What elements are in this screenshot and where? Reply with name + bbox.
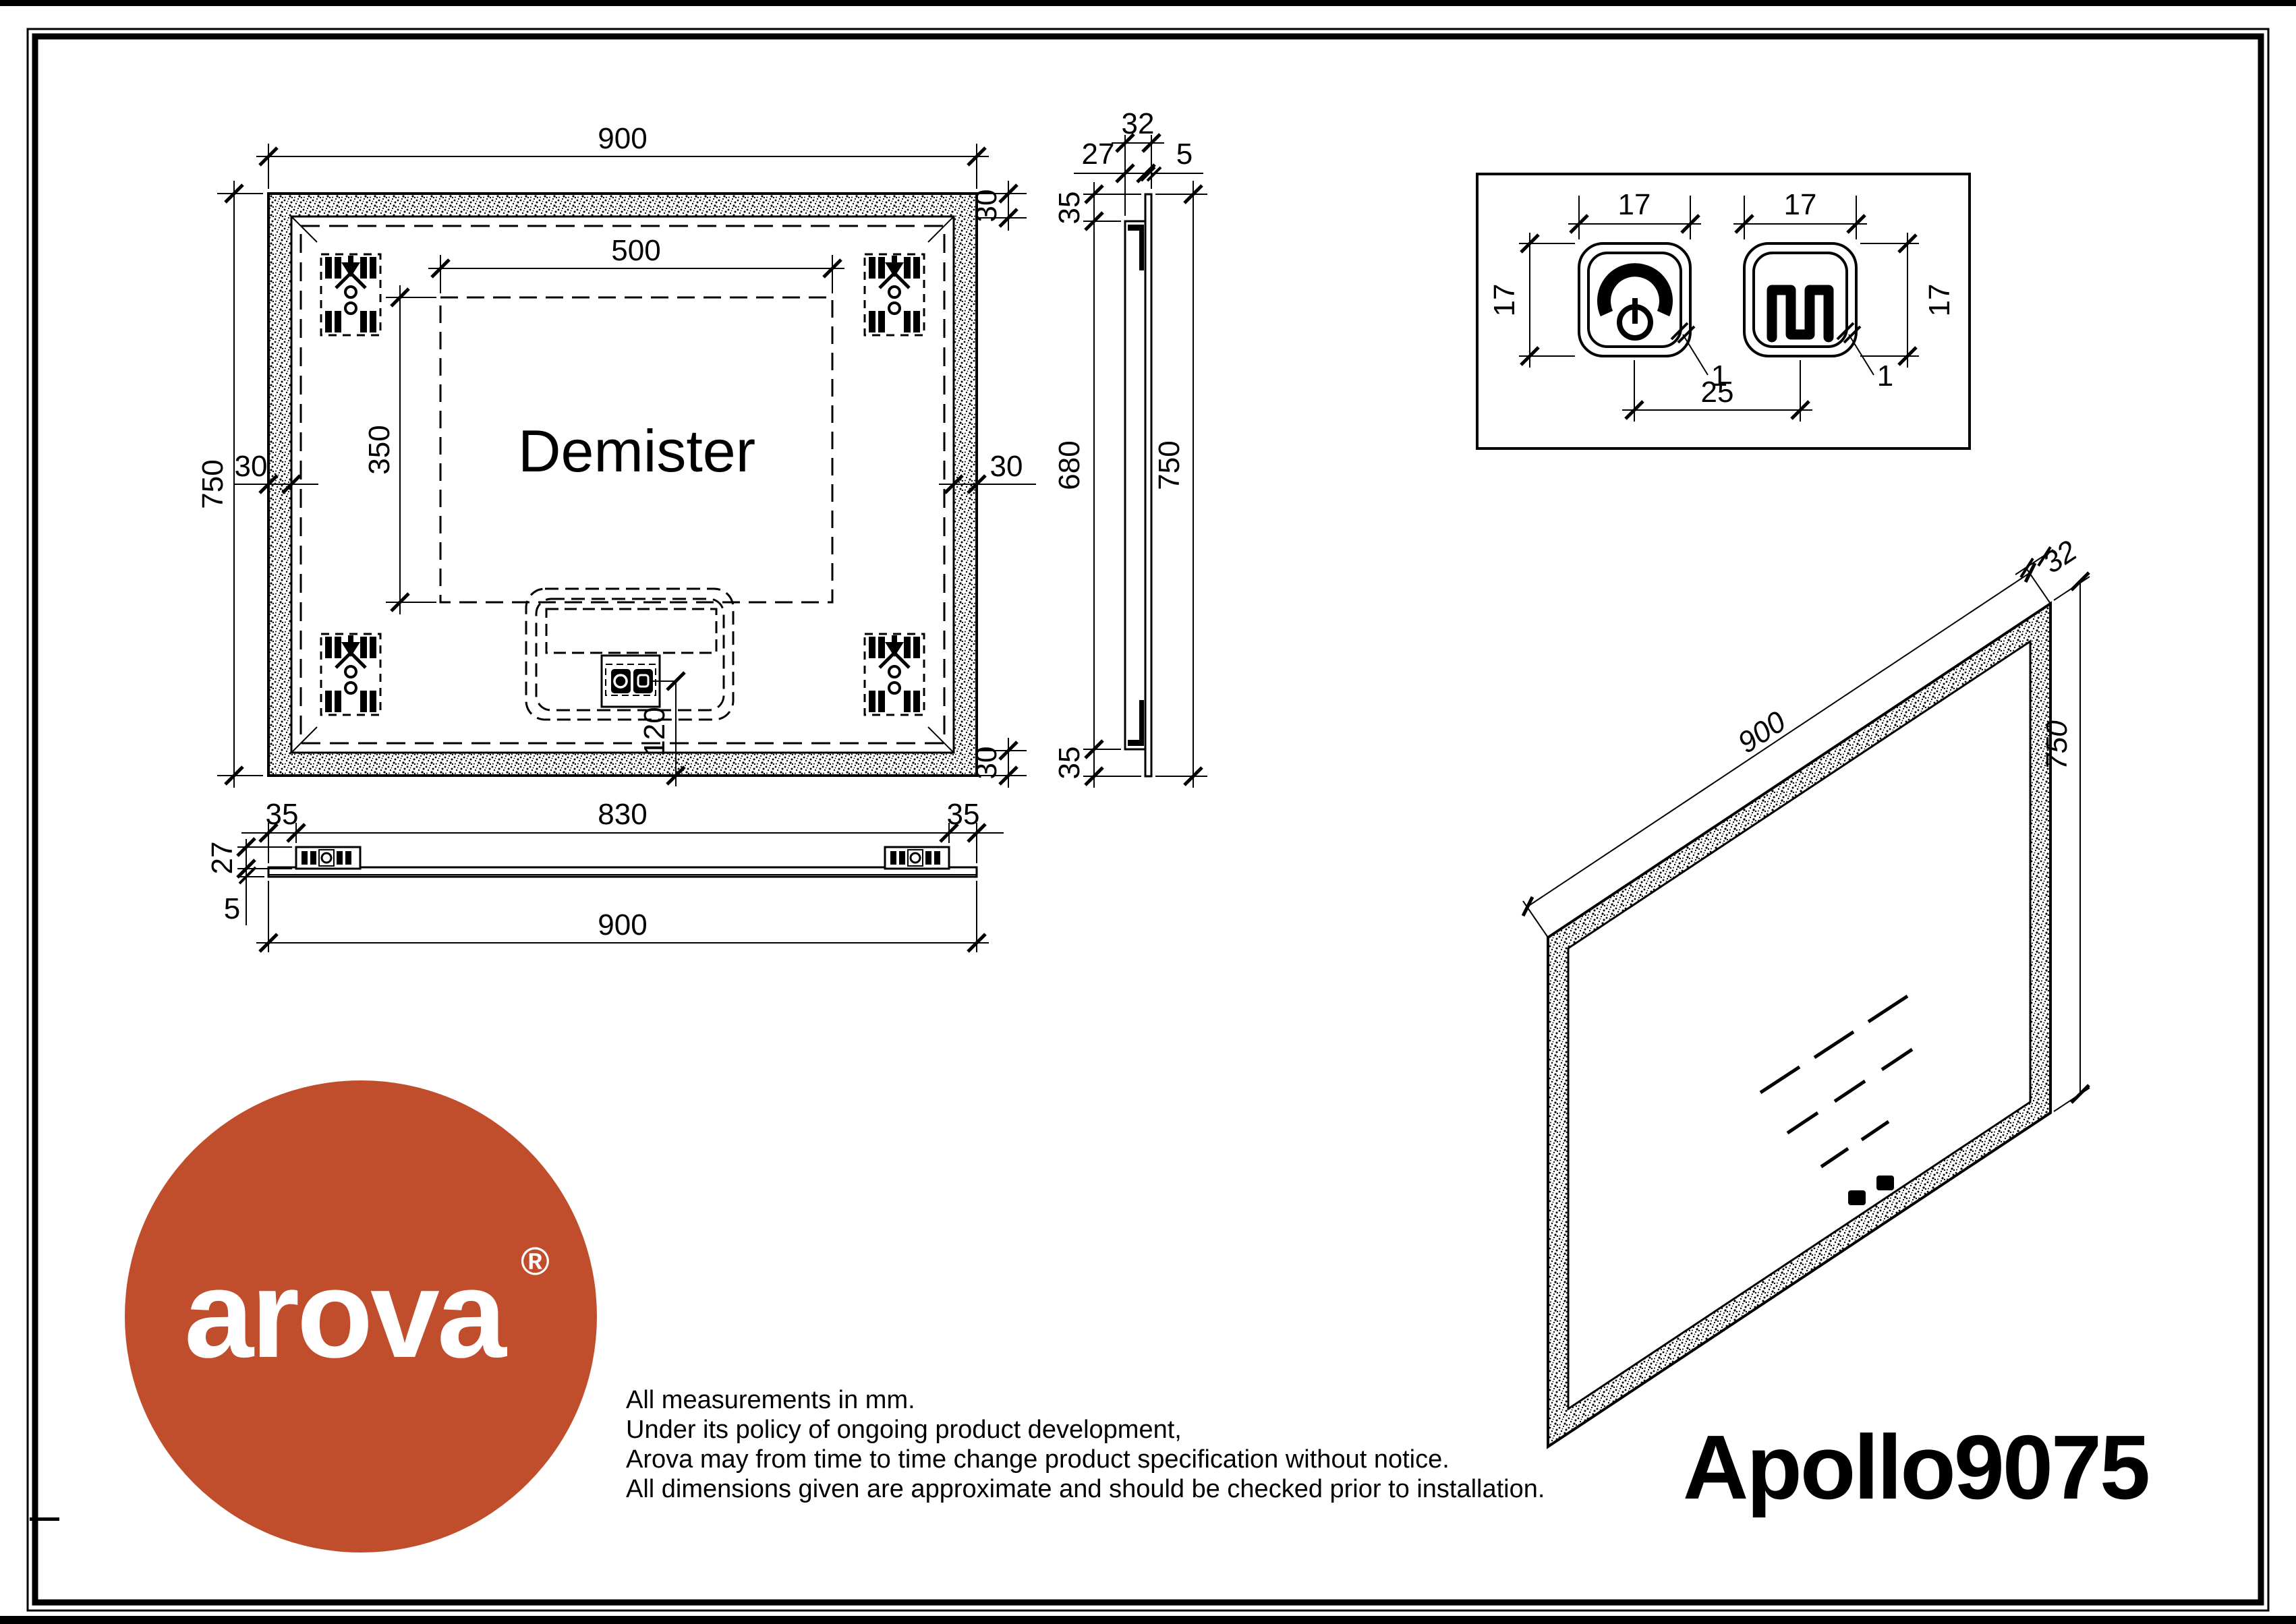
dim-bottom-width: 900	[256, 881, 989, 952]
touch-demister-button-small	[633, 669, 653, 693]
dim-label: 900	[598, 908, 647, 941]
dim-label: 17	[1618, 188, 1651, 221]
brand-name: arova	[184, 1245, 508, 1384]
iso-touch-button-2	[1876, 1176, 1894, 1190]
disclaimer-line: All measurements in mm.	[626, 1386, 915, 1414]
dim-label: 900	[598, 122, 647, 155]
front-view: Demister 900	[196, 122, 1036, 788]
technical-drawing: Demister 900	[0, 0, 2296, 1624]
dim-side-frame-depth: 27	[1074, 138, 1155, 182]
dim-label: 32	[2037, 534, 2083, 580]
dim-label: 1	[1877, 359, 1893, 393]
product-name: Apollo9075	[1683, 1416, 2148, 1518]
bottom-bracket-right	[885, 847, 949, 869]
dim-label: 680	[1053, 440, 1086, 490]
bottom-bracket-left	[296, 847, 360, 869]
dim-label: 120	[638, 707, 671, 756]
registered-trademark-icon: ®	[521, 1240, 550, 1283]
dim-side-thickness: 32	[1112, 107, 1164, 216]
dim-label: 30	[990, 450, 1023, 483]
disclaimer-text: All measurements in mm. Under its policy…	[626, 1386, 1545, 1503]
dim-label: 5	[1176, 138, 1193, 171]
dim-label: 35	[1053, 192, 1086, 225]
dim-label: 35	[1053, 747, 1086, 780]
isometric-view: 900 750 32	[1523, 534, 2090, 1447]
dim-label: 350	[363, 425, 396, 474]
dim-label: 1	[1711, 359, 1727, 393]
side-frame	[1125, 221, 1145, 749]
dim-label: 17	[1923, 284, 1956, 317]
dim-label: 5	[224, 892, 240, 925]
dim-label: 35	[266, 798, 299, 831]
dim-label: 30	[235, 450, 268, 483]
dim-label: 35	[947, 798, 980, 831]
dim-bottom-depths: 27 5	[206, 838, 292, 925]
dim-border-bottom: 30	[970, 738, 1027, 788]
dim-label: 27	[1082, 138, 1115, 171]
dim-label: 830	[598, 798, 647, 831]
dim-side-height: 750	[1153, 181, 1207, 788]
iso-mirror-face	[1568, 641, 2030, 1409]
dim-label: 30	[970, 747, 1003, 780]
dim-label: 500	[611, 234, 660, 267]
dim-label: 750	[196, 459, 229, 509]
dim-label: 27	[206, 842, 239, 875]
dim-label: 750	[2040, 720, 2073, 770]
iso-touch-button-1	[1848, 1190, 1866, 1205]
disclaimer-line: Under its policy of ongoing product deve…	[626, 1416, 1182, 1444]
dim-label: 750	[1153, 440, 1186, 490]
dim-label: 900	[1732, 705, 1792, 760]
disclaimer-line: All dimensions given are approximate and…	[626, 1475, 1545, 1503]
dim-label: 17	[1488, 284, 1521, 317]
dim-label: 32	[1122, 107, 1155, 140]
dim-border-top: 30	[970, 181, 1027, 231]
detail-view-touch-buttons: 17 17 17 17	[1477, 174, 1970, 448]
dim-iso-thickness: 32	[2015, 534, 2083, 580]
dim-label: 30	[970, 190, 1003, 223]
drawing-sheet: Demister 900	[0, 0, 2296, 1624]
dim-front-width: 900	[256, 122, 989, 189]
dim-label: 17	[1784, 188, 1817, 221]
demister-label: Demister	[518, 417, 755, 484]
fold-mark	[30, 1517, 59, 1521]
disclaimer-line: Arova may from time to time change produ…	[626, 1445, 1450, 1474]
side-view: 32 27 5 35 680 35	[1053, 107, 1207, 788]
brand-logo: arova ®	[125, 1080, 597, 1553]
bottom-view: 35 830 35 27 5 900	[206, 798, 1004, 952]
